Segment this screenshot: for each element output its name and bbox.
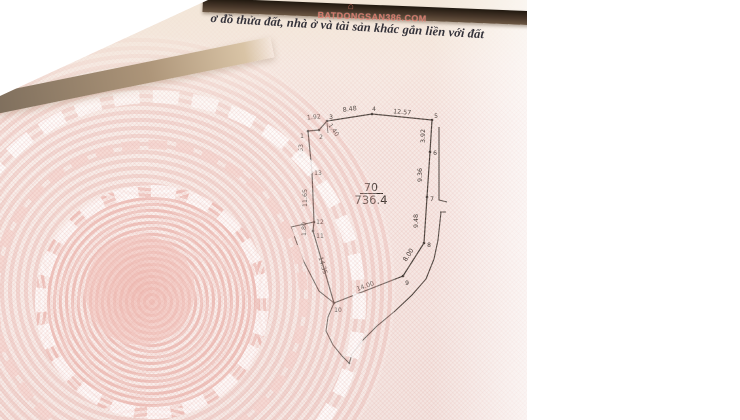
screenshot-canvas: ơ đồ thửa đất, nhà ở và tài sản khác gắn… <box>0 0 740 420</box>
certificate-photo: ơ đồ thửa đất, nhà ở và tài sản khác gắn… <box>0 0 740 420</box>
site-watermark: ⌂ BATDONGSAN386.COM <box>317 2 427 24</box>
right-glare <box>432 0 527 420</box>
